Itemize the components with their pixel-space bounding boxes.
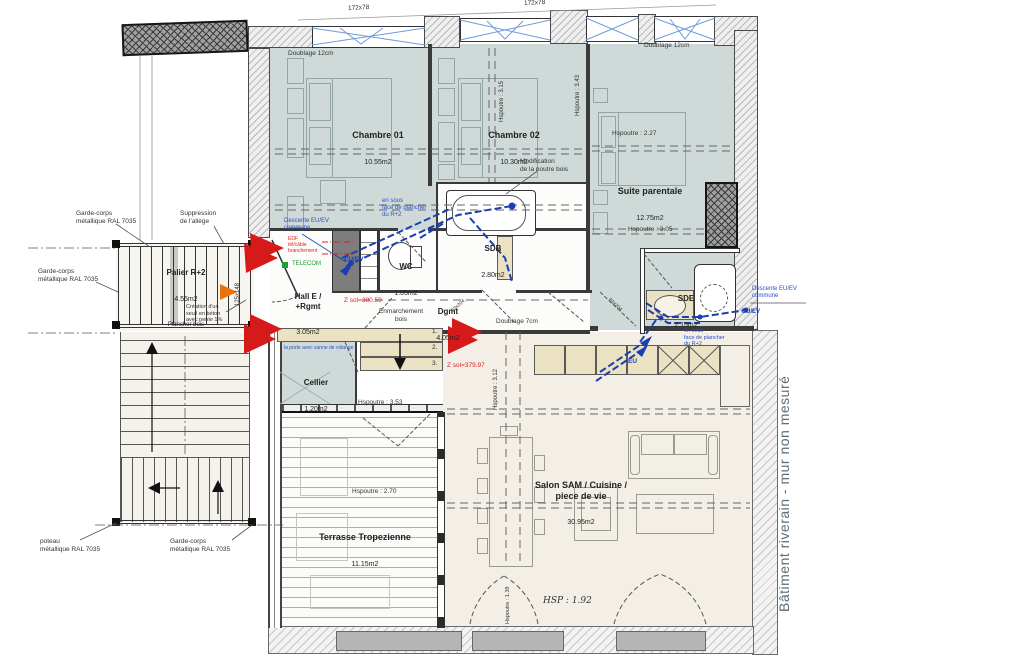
room-label-wc: WC 1.05m2 [388, 244, 424, 316]
room-label-cellier: Cellier 1.20m2 [286, 360, 346, 432]
note-telecom: TELECOM [292, 261, 321, 268]
room-label-salon: Salon SAM / Cuisine / piece de vie 30.95… [521, 462, 641, 546]
note-hspoutre: Hspoutre : 3.12 [493, 360, 500, 410]
door-dim: 125x148 [235, 268, 242, 306]
note-euev: EU/EV [742, 309, 760, 316]
note-hsp: HSP : 1.92 [543, 596, 592, 606]
note-descente: Descente EU/EV commune [752, 286, 802, 300]
note-hspoutre: Hspoutre : 3.05 [628, 226, 688, 234]
roof-window-glazing-lines [312, 18, 715, 45]
room-label-hall: Hall E / +Rgmt 3.05m2 [278, 274, 338, 356]
note-doublage7: Doublage 7cm [496, 318, 538, 326]
floor-plan: 172x78 172x78 Doublage 12cm Doublage 12c… [0, 0, 1024, 655]
note-sousface: en sous face de plancher du R+2 [382, 198, 434, 220]
note-zsol: Z sol=379.97 [447, 362, 485, 370]
note-seuil: Création d'un seuil en béton avec pente … [186, 304, 236, 324]
note-hspoutre: Hspoutre : 3.43 [575, 52, 582, 116]
utility-legend: EDF tél/câble branchement [288, 236, 322, 254]
note-eu: EU [628, 358, 637, 366]
note-doublage: Doublage 12cm [644, 42, 690, 50]
note-doublage: Doublage 12cm [288, 50, 334, 58]
note-sousface: en sous face de plancher du R+2 [684, 328, 736, 348]
note-gardecorps: Garde-corps métallique RAL 7035 [170, 538, 238, 554]
note-gardecorps: Garde-corps métallique RAL 7035 [38, 268, 102, 284]
stair-left-arrow [148, 482, 160, 494]
room-label-palier: Palier R+2 4.55m2 Plancher bois [150, 250, 222, 348]
utility-red-lines [322, 242, 354, 254]
note-hspoutre: Hspoutre : 3.15 [499, 58, 506, 122]
note-poteau: poteau métallique RAL 7035 [40, 538, 104, 554]
note-hspoutre: Hspoutre : 3.53 [358, 399, 418, 407]
stair-arrow [212, 480, 224, 492]
note-batiment-riverain: Bâtiment riverain - mur non mesuré [776, 322, 793, 612]
note-vanne: la porte avec vanne de vidange [284, 345, 360, 351]
note-modification: Modification de la poutre bois [520, 158, 582, 174]
steps-down-arrow [394, 358, 406, 370]
note-hspoutre: Hspoutre : 1.39 [505, 576, 512, 624]
note-euev: EU/EV [344, 256, 364, 264]
step-number: 1. [432, 328, 437, 336]
note-hspoutre: Hspoutre : 2.27 [612, 130, 672, 138]
note-hspoutre: Hspoutre : 2.70 [352, 488, 412, 496]
note-suppression: Suppression de l'allège [180, 210, 234, 226]
note-gardecorps: Garde-corps métallique RAL 7035 [76, 210, 140, 226]
telecom-icon [282, 262, 288, 268]
room-label-terrasse: Terrasse Tropezienne 11.15m2 [305, 514, 425, 588]
note-enmarchement: Enmarchement bois [376, 308, 426, 324]
room-label-sdb: SDB 2.80m2 [468, 226, 518, 298]
appliance-cross [658, 346, 719, 375]
step-number: 2. [432, 344, 437, 352]
room-label-chambre01: Chambre 01 10.55m2 [338, 112, 418, 186]
room-label-chambre02: Chambre 02 10.30m2 [474, 112, 554, 186]
note-descente: Descente EU/EV commune [284, 218, 338, 232]
step-number: 3. [432, 360, 437, 368]
note-zsol: Z sol=380.59 [344, 297, 382, 305]
room-label-dgmt: Dgmt 4.05m2 [420, 289, 476, 361]
